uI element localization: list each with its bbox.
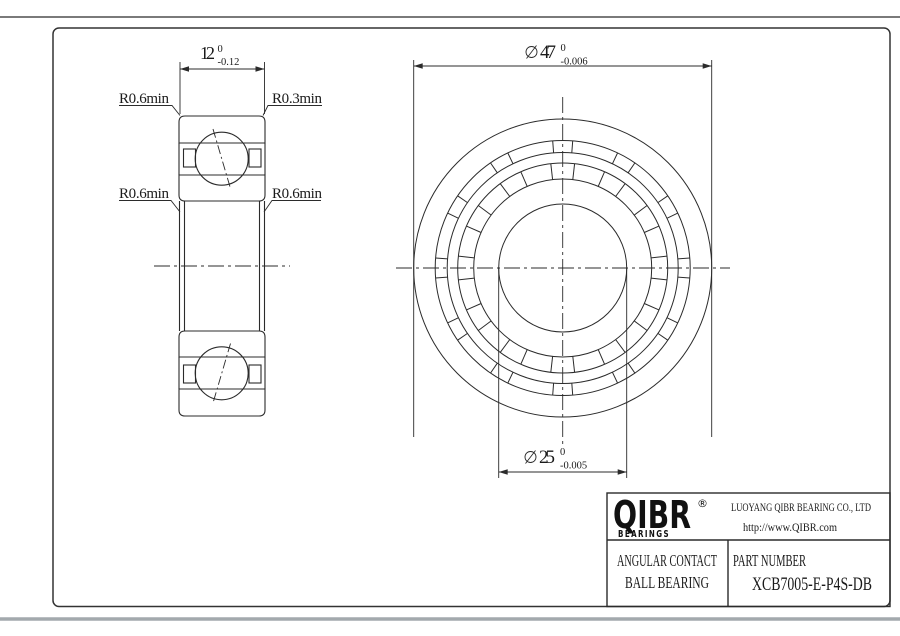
bore-nominal: 25 xyxy=(539,447,555,468)
product-type-line1: ANGULAR CONTACT xyxy=(617,551,717,570)
od-upper-tol: 0 xyxy=(561,43,566,54)
width-nominal: 12 xyxy=(200,43,215,63)
dimension-width: 12 0 -0.12 xyxy=(180,43,265,114)
cage-section-right xyxy=(249,365,261,383)
outer-ring-section xyxy=(179,389,265,416)
part-number-label: PART NUMBER xyxy=(733,551,806,570)
product-type-line2: BALL BEARING xyxy=(625,573,709,592)
part-number: XCB7005-E-P4S-DB xyxy=(752,574,872,595)
ball xyxy=(195,347,248,400)
cage-section-right xyxy=(249,149,261,167)
registered-trademark-symbol: ® xyxy=(697,497,708,510)
section-bottom-assembly xyxy=(179,331,265,416)
contact-angle-line xyxy=(213,129,231,189)
extension-lines xyxy=(180,62,265,114)
arrowhead-left xyxy=(180,66,189,71)
diameter-symbol xyxy=(525,451,536,464)
arrowhead-right xyxy=(703,63,712,68)
fillet-label-mid-right: R0.6min xyxy=(264,186,323,212)
arrowhead-left xyxy=(414,63,423,68)
drawing-page: 12 0 -0.12 R0.6min R0.3min R0.6min R0.6m… xyxy=(0,0,900,636)
bore-upper-tol: 0 xyxy=(560,447,565,458)
cage-section-left xyxy=(184,365,196,383)
brand-logo: QIBR ® BEARINGS xyxy=(613,493,708,540)
bore-region xyxy=(154,201,290,331)
inner-ring-section xyxy=(179,175,265,201)
arrowhead-right xyxy=(618,469,627,474)
cage-section-left xyxy=(184,149,196,167)
fillet-label-mid-left: R0.6min xyxy=(119,186,180,212)
fillet-label-top-right: R0.3min xyxy=(263,91,323,116)
leader-line xyxy=(264,201,321,213)
od-lower-tol: -0.006 xyxy=(561,57,588,68)
bearing-section-view: 12 0 -0.12 R0.6min R0.3min R0.6min R0.6m… xyxy=(119,43,323,416)
fillet-label-text: R0.3min xyxy=(272,91,323,107)
bore-lower-tol: -0.005 xyxy=(560,461,587,472)
fillet-label-text: R0.6min xyxy=(119,91,170,107)
outer-ring-section xyxy=(179,116,265,143)
od-nominal: 47 xyxy=(540,42,556,63)
width-upper-tol: 0 xyxy=(218,44,223,55)
bearing-front-view: 47 0 -0.006 25 0 -0.005 xyxy=(396,42,730,478)
leader-line xyxy=(263,106,322,116)
width-lower-tol: -0.12 xyxy=(218,57,240,68)
fillet-label-text: R0.6min xyxy=(119,186,170,202)
fillet-label-text: R0.6min xyxy=(272,186,323,202)
title-block: QIBR ® BEARINGS LUOYANG QIBR BEARING CO.… xyxy=(607,493,890,607)
diameter-symbol xyxy=(526,46,537,59)
contact-angle-line xyxy=(213,344,231,404)
leader-line xyxy=(119,106,180,116)
inner-ring-section xyxy=(179,331,265,357)
brand-subtitle: BEARINGS xyxy=(618,529,670,540)
website-url: http://www.QIBR.com xyxy=(743,520,838,534)
company-name: LUOYANG QIBR BEARING CO., LTD xyxy=(731,502,871,514)
arrowhead-left xyxy=(499,469,508,474)
arrowhead-right xyxy=(256,66,265,71)
fillet-label-top-left: R0.6min xyxy=(119,91,180,116)
section-top-assembly xyxy=(179,116,265,201)
engineering-drawing: 12 0 -0.12 R0.6min R0.3min R0.6min R0.6m… xyxy=(0,0,900,636)
ring-side-faces xyxy=(179,143,265,175)
leader-line xyxy=(119,201,180,213)
